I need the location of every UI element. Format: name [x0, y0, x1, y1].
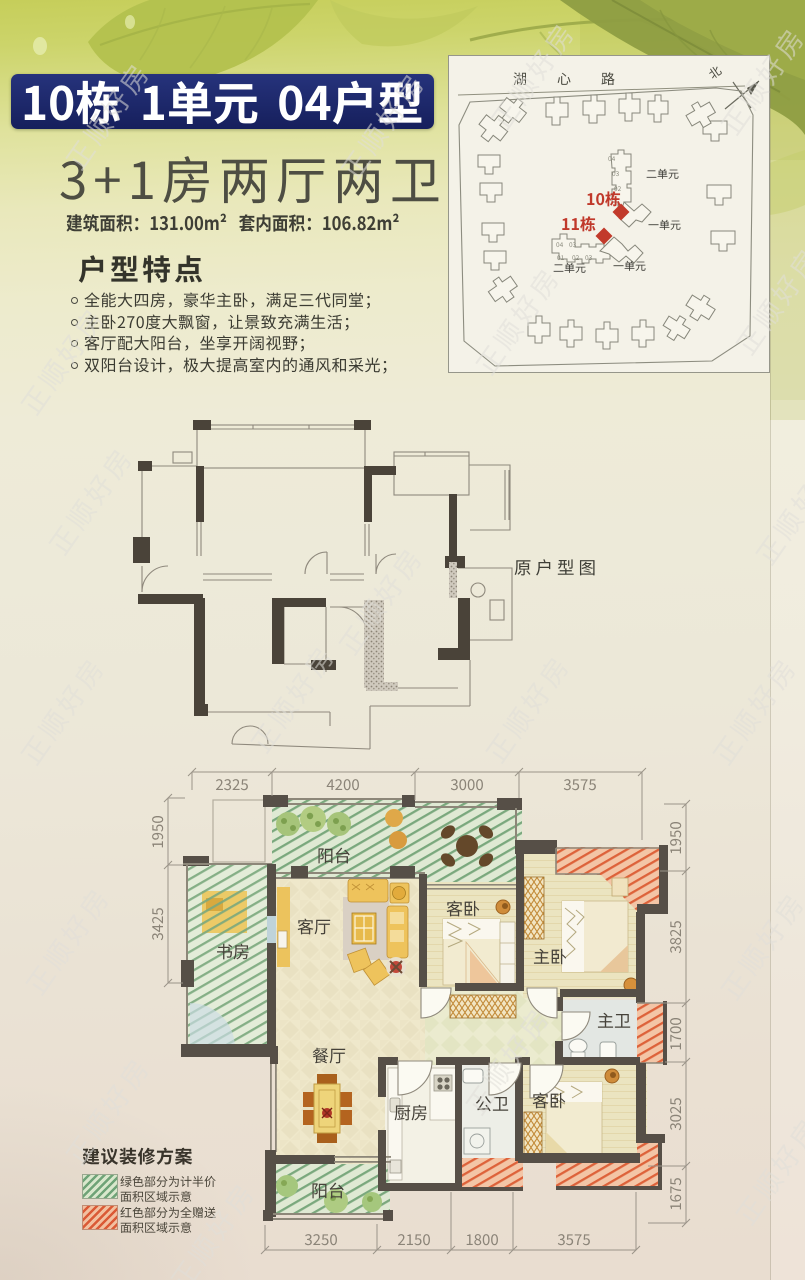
svg-text:3825: 3825 [665, 920, 686, 953]
svg-text:10栋: 10栋 [586, 186, 621, 210]
svg-text:3000: 3000 [450, 774, 483, 795]
svg-text:1800: 1800 [465, 1229, 498, 1250]
svg-text:04: 04 [608, 153, 616, 163]
svg-text:路: 路 [601, 69, 615, 89]
svg-text:阳台: 阳台 [317, 842, 351, 867]
svg-text:2325: 2325 [215, 774, 248, 795]
svg-text:公卫: 公卫 [475, 1090, 509, 1115]
svg-text:3025: 3025 [665, 1097, 686, 1130]
svg-text:主卫: 主卫 [597, 1007, 631, 1032]
svg-text:一单元: 一单元 [648, 217, 681, 233]
svg-text:二单元: 二单元 [553, 260, 586, 276]
svg-text:客厅: 客厅 [297, 913, 331, 938]
svg-text:一单元: 一单元 [613, 258, 646, 274]
svg-text:1675: 1675 [665, 1177, 686, 1210]
svg-text:餐厅: 餐厅 [312, 1042, 346, 1067]
svg-text:客卧: 客卧 [532, 1087, 566, 1112]
svg-text:3250: 3250 [304, 1229, 337, 1250]
svg-text:11栋: 11栋 [561, 211, 596, 235]
svg-text:4200: 4200 [326, 774, 359, 795]
svg-text:主卧: 主卧 [533, 943, 567, 968]
svg-text:书房: 书房 [216, 938, 250, 963]
svg-text:3425: 3425 [147, 907, 168, 940]
svg-text:1950: 1950 [665, 821, 686, 854]
svg-text:1950: 1950 [147, 815, 168, 848]
svg-text:厨房: 厨房 [394, 1099, 428, 1124]
svg-text:心: 心 [557, 69, 571, 89]
svg-text:2150: 2150 [397, 1229, 430, 1250]
svg-text:湖: 湖 [513, 69, 527, 89]
svg-text:04: 04 [556, 239, 564, 249]
svg-text:03: 03 [585, 252, 593, 262]
svg-text:03: 03 [612, 168, 620, 178]
svg-text:3575: 3575 [557, 1229, 590, 1250]
svg-text:3575: 3575 [563, 774, 596, 795]
svg-text:二单元: 二单元 [646, 166, 679, 182]
svg-text:03: 03 [569, 239, 577, 249]
svg-text:客卧: 客卧 [446, 895, 480, 920]
svg-text:阳台: 阳台 [311, 1177, 345, 1202]
svg-text:1700: 1700 [665, 1017, 686, 1050]
